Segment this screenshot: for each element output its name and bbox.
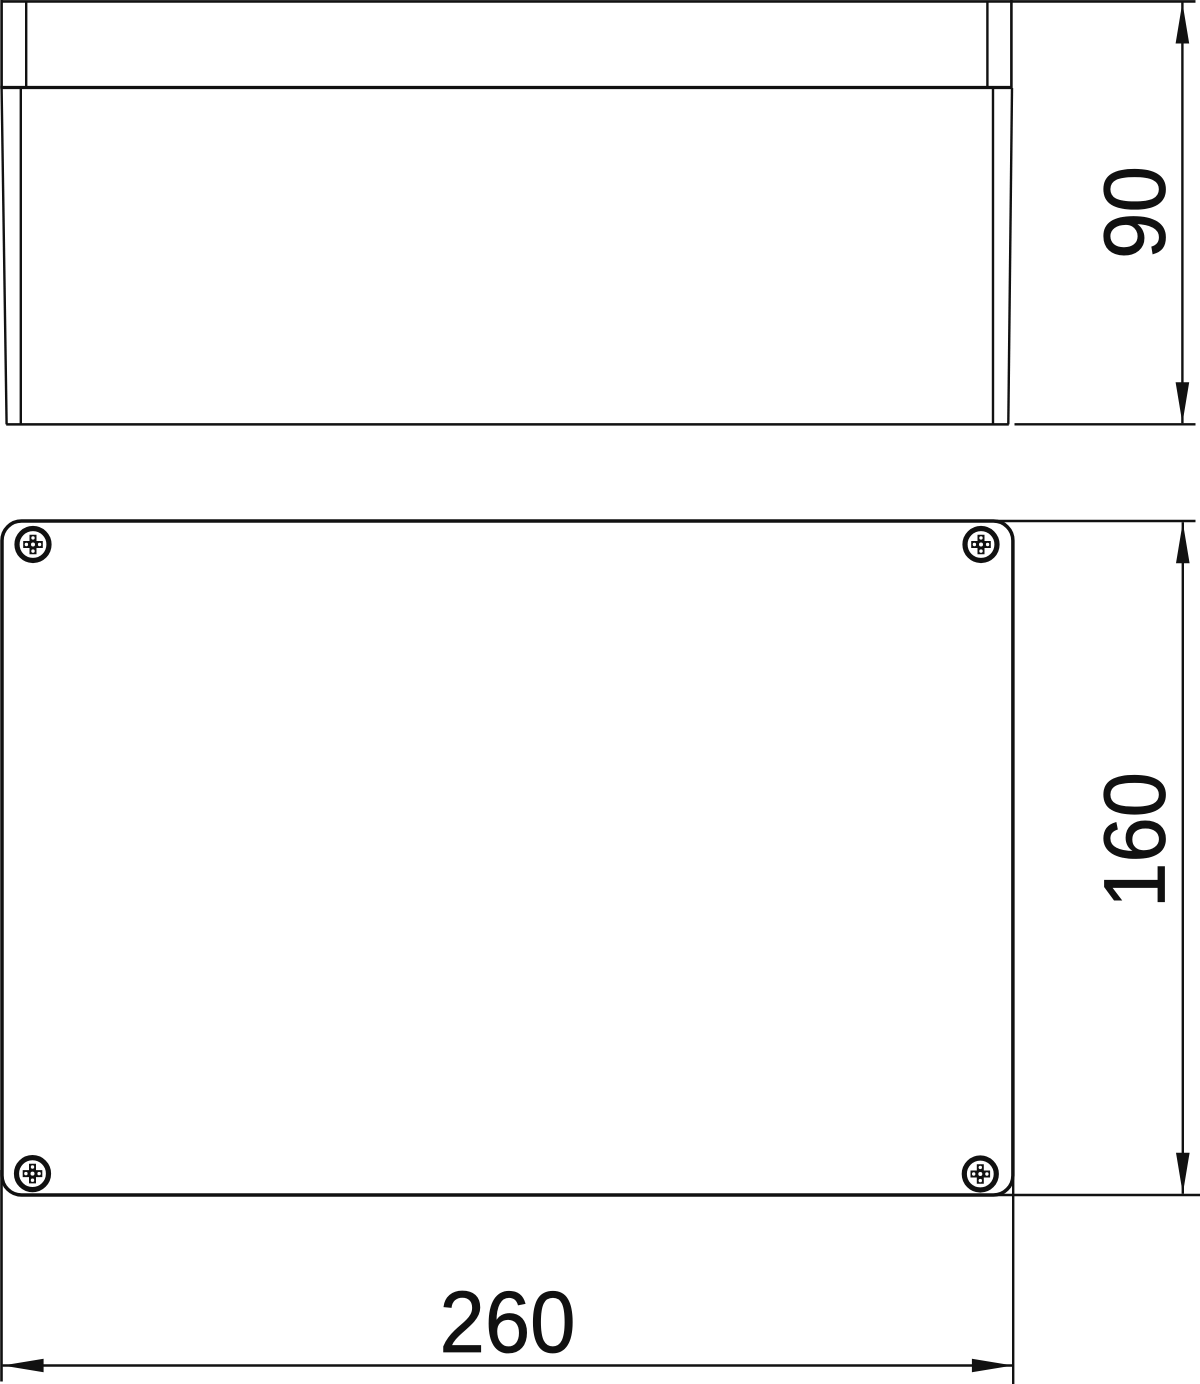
svg-text:160: 160 (1085, 772, 1183, 908)
svg-text:90: 90 (1085, 166, 1183, 259)
svg-text:260: 260 (440, 1273, 576, 1371)
